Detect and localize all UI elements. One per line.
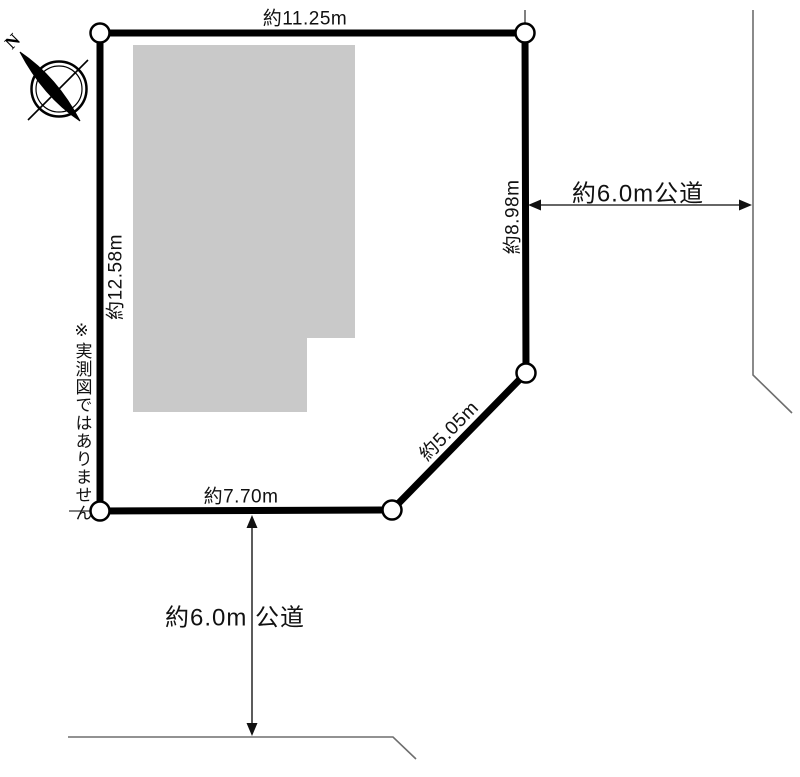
bottom-road-boundary-line [68,737,416,759]
disclaimer-note: ※実測図ではありません [70,321,95,522]
right-road-arrowhead-right [739,200,752,211]
building-footprint [133,45,355,412]
right-road-label: 約6.0m公道 [572,174,704,209]
bottom-road-label: 約6.0m 公道 [165,598,305,633]
compass-north-label: N [1,29,24,52]
dimension-label-left: 約12.58m [101,234,128,320]
dimension-label-right: 約8.98m [498,180,525,255]
dimension-label-bottom: 約7.70m [204,482,279,509]
bottom-road-arrowhead-top [247,515,258,528]
dimension-label-top: 約11.25m [263,4,347,31]
vertex-marker-right-bottom [517,364,536,383]
vertex-marker-top-right [516,24,535,43]
compass-icon: N [1,29,88,121]
vertex-marker-top-left [91,24,110,43]
right-road-arrowhead-left [528,200,541,211]
bottom-road-arrowhead-bottom [247,723,258,736]
vertex-marker-diagonal-bottom [383,501,402,520]
plot-survey-diagram: N 約11.25m 約12.58m 約8.98m 約5.05m 約7.70m 約… [0,0,800,777]
right-road-boundary-line [753,10,792,413]
diagram-drawing: N [0,0,800,777]
